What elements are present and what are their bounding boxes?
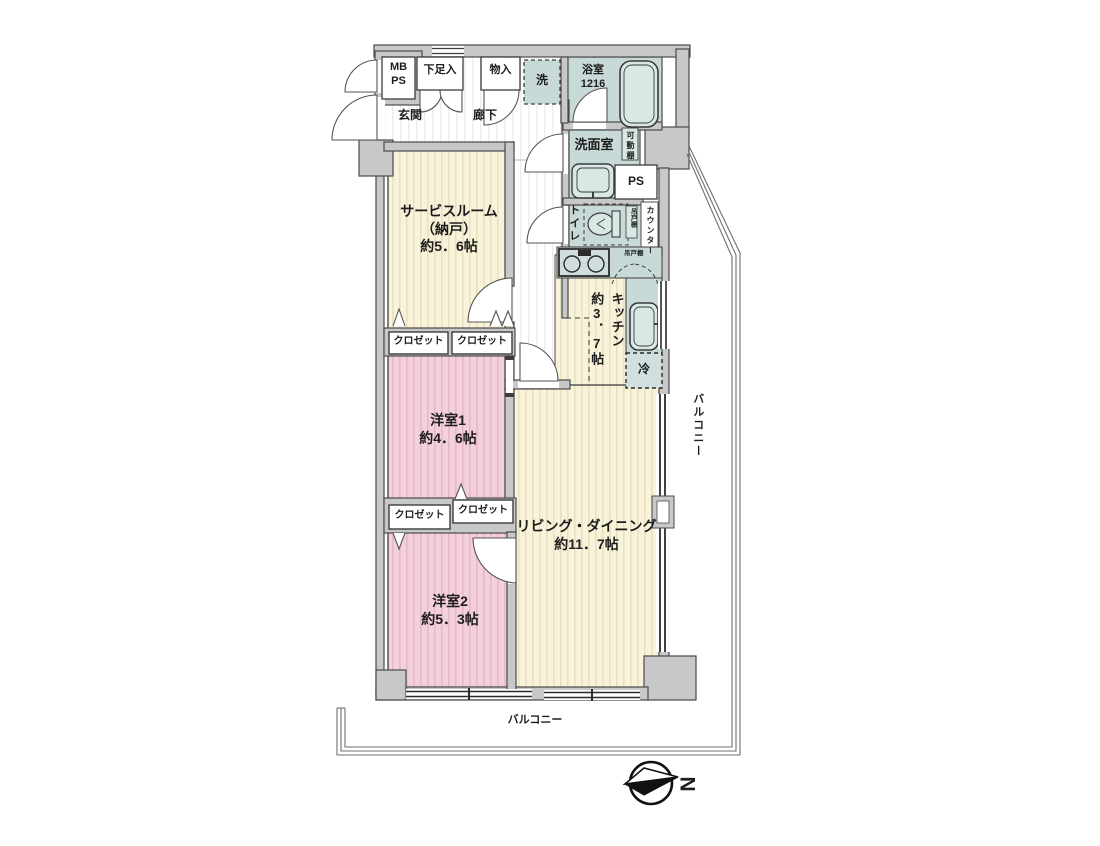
hanging-cupboard-kitchen-label: 吊戸棚	[624, 250, 644, 258]
washer-label: 洗	[524, 73, 560, 88]
closet-label: クロゼット	[453, 505, 513, 518]
entrance-label: 玄関	[388, 108, 432, 123]
kitchen-label: キッチン約3．7帖	[588, 292, 625, 392]
fridge-label: 冷	[626, 362, 662, 377]
floor-plan: MBPS 下足入 物入 洗 浴室1216 玄関 廊下 洗面室 可動棚 PS トイ…	[0, 0, 1100, 846]
entrance-door-arc	[332, 95, 377, 140]
window-top	[432, 46, 464, 56]
washroom-label: 洗面室	[566, 137, 622, 153]
shoe-cabinet-label: 下足入	[417, 64, 463, 78]
storage-label: 物入	[481, 64, 520, 78]
counter-label: カウンター	[645, 206, 655, 248]
movable-shelf-label: 可動棚	[625, 131, 635, 159]
balcony-right-label: バルコニー	[690, 393, 704, 477]
corridor-label: 廊下	[463, 108, 507, 123]
pipe-space-label: PS	[620, 174, 652, 189]
hanging-cupboard-toilet-label: 吊戸棚	[628, 208, 636, 236]
balcony-bottom-label: バルコニー	[495, 714, 575, 728]
bath-label: 浴室1216	[567, 64, 619, 92]
meterbox-door-arc	[345, 60, 377, 92]
meterbox-label: MBPS	[383, 61, 414, 89]
closet-label: クロゼット	[389, 510, 450, 523]
washroom-sink	[572, 164, 614, 198]
compass-north-label: N	[673, 777, 699, 792]
toilet-label: トイレ	[566, 204, 580, 250]
service-room-label: サービスルーム （納戸） 約5．6帖	[388, 203, 510, 256]
bedroom1-label: 洋室1約4．6帖	[388, 412, 508, 447]
stove	[559, 249, 609, 276]
closet-label: クロゼット	[389, 336, 448, 349]
living-label: リビング・ダイニング約11．7帖	[513, 518, 660, 553]
closet-label: クロゼット	[452, 336, 512, 349]
bedroom2-label: 洋室2約5．3帖	[388, 593, 512, 628]
compass	[625, 762, 678, 804]
kitchen-sink	[630, 303, 658, 350]
bathtub	[620, 61, 658, 127]
